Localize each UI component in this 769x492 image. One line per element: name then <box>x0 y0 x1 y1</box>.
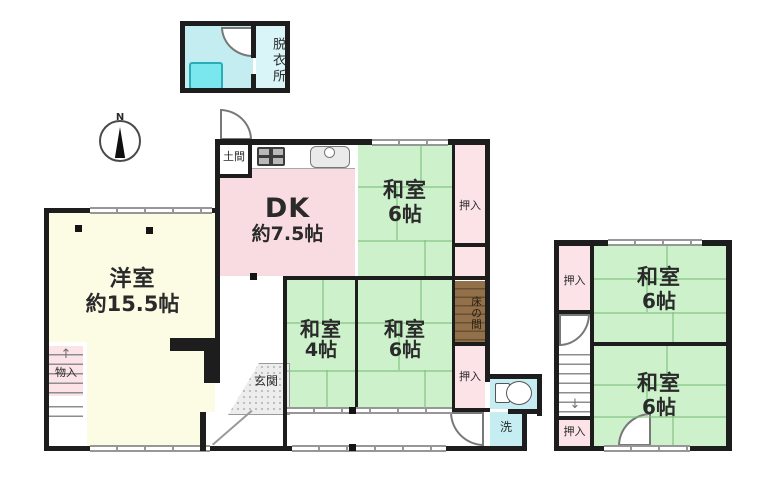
stove-icon <box>257 147 285 166</box>
western-room-size: 約15.5帖 <box>60 293 205 317</box>
wall <box>283 276 287 451</box>
window <box>604 445 690 452</box>
annex-north-size: 6帖 <box>615 290 703 312</box>
doma-label: 土間 <box>219 151 249 163</box>
western-room <box>87 342 200 446</box>
dk-room-label: DK 約7.5帖 <box>225 194 350 246</box>
tatami-line <box>322 280 324 322</box>
genkan-step-line <box>212 410 253 446</box>
corridor-door-arc-icon <box>450 412 484 446</box>
dressing-room-label: 脱衣所 <box>258 33 284 89</box>
tatami-line <box>326 370 328 408</box>
wall <box>283 276 490 280</box>
wall <box>485 374 542 379</box>
wall <box>554 416 594 420</box>
pillar <box>146 227 153 234</box>
wall <box>215 174 252 178</box>
genkan-area <box>228 363 290 415</box>
wall <box>355 280 358 408</box>
window <box>90 207 212 214</box>
wall <box>726 240 732 451</box>
annex-south-name: 和室 <box>615 372 703 396</box>
washitsu-4-name: 和室 <box>288 318 354 340</box>
wall <box>204 338 220 383</box>
wall <box>554 310 594 314</box>
tatami-line <box>672 416 674 446</box>
washitsu-ne-label: 和室 6帖 <box>363 179 447 225</box>
tatami-line <box>672 312 674 342</box>
annex-north-name: 和室 <box>615 266 703 290</box>
arrow-down-icon: ↓ <box>566 398 584 411</box>
tokonoma-label: 床の間 <box>460 286 481 340</box>
wall <box>215 139 490 145</box>
annex-oshiire-north-label: 押入 <box>559 275 590 287</box>
tatami-line <box>287 370 355 372</box>
tatami-line <box>420 280 422 322</box>
oshiire-mid-label: 押入 <box>455 371 485 383</box>
window <box>287 407 452 414</box>
washitsu-ne-size: 6帖 <box>363 203 447 225</box>
tatami-line <box>424 370 426 408</box>
washitsu-4-size: 4帖 <box>288 340 354 361</box>
dk-room-name: DK <box>225 194 350 224</box>
dk-room-size: 約7.5帖 <box>225 224 350 245</box>
pillar <box>349 407 356 414</box>
oshiire-ne-label: 押入 <box>455 200 485 212</box>
wall <box>594 342 726 346</box>
wall <box>452 408 490 412</box>
annex-stair-door-arc-icon <box>559 314 590 346</box>
entrance-door-arc-icon <box>220 109 252 140</box>
window <box>372 139 448 146</box>
arrow-up-icon: ↑ <box>57 348 75 361</box>
tatami-line <box>358 370 452 372</box>
washitsu-ne-name: 和室 <box>363 179 447 203</box>
western-room-name: 洋室 <box>60 268 205 293</box>
wall <box>44 208 49 451</box>
window <box>608 239 702 246</box>
annex-washitsu-south-label: 和室 6帖 <box>615 372 703 418</box>
monoire-label: 物入 <box>49 367 83 379</box>
sink-faucet-icon <box>324 147 335 158</box>
western-room-label: 洋室 約15.5帖 <box>60 268 205 316</box>
pillar <box>349 444 356 451</box>
pillar <box>75 225 82 232</box>
floor-plan: 脱衣所 N ↑ <box>0 0 769 492</box>
compass-north-label: N <box>110 112 130 123</box>
wall <box>452 243 490 247</box>
wall <box>200 412 206 451</box>
wall <box>452 342 490 346</box>
stairwell-lower <box>49 398 83 418</box>
pillar <box>250 273 257 280</box>
window <box>90 445 210 452</box>
genkan-label: 玄関 <box>243 375 289 388</box>
annex-oshiire-south-label: 押入 <box>559 426 590 438</box>
toilet-bowl-icon <box>506 381 532 405</box>
window <box>292 445 446 452</box>
tatami-line <box>358 240 452 242</box>
wall <box>452 145 455 408</box>
laundry-label: 洗 <box>492 421 520 434</box>
washitsu-mid-label: 和室 6帖 <box>362 318 448 362</box>
washitsu-mid-size: 6帖 <box>362 340 448 361</box>
washitsu-mid-name: 和室 <box>362 318 448 340</box>
annex-south-size: 6帖 <box>615 396 703 418</box>
tatami-line <box>424 240 426 276</box>
washitsu-4-label: 和室 4帖 <box>288 318 354 362</box>
annex-washitsu-north-label: 和室 6帖 <box>615 266 703 312</box>
